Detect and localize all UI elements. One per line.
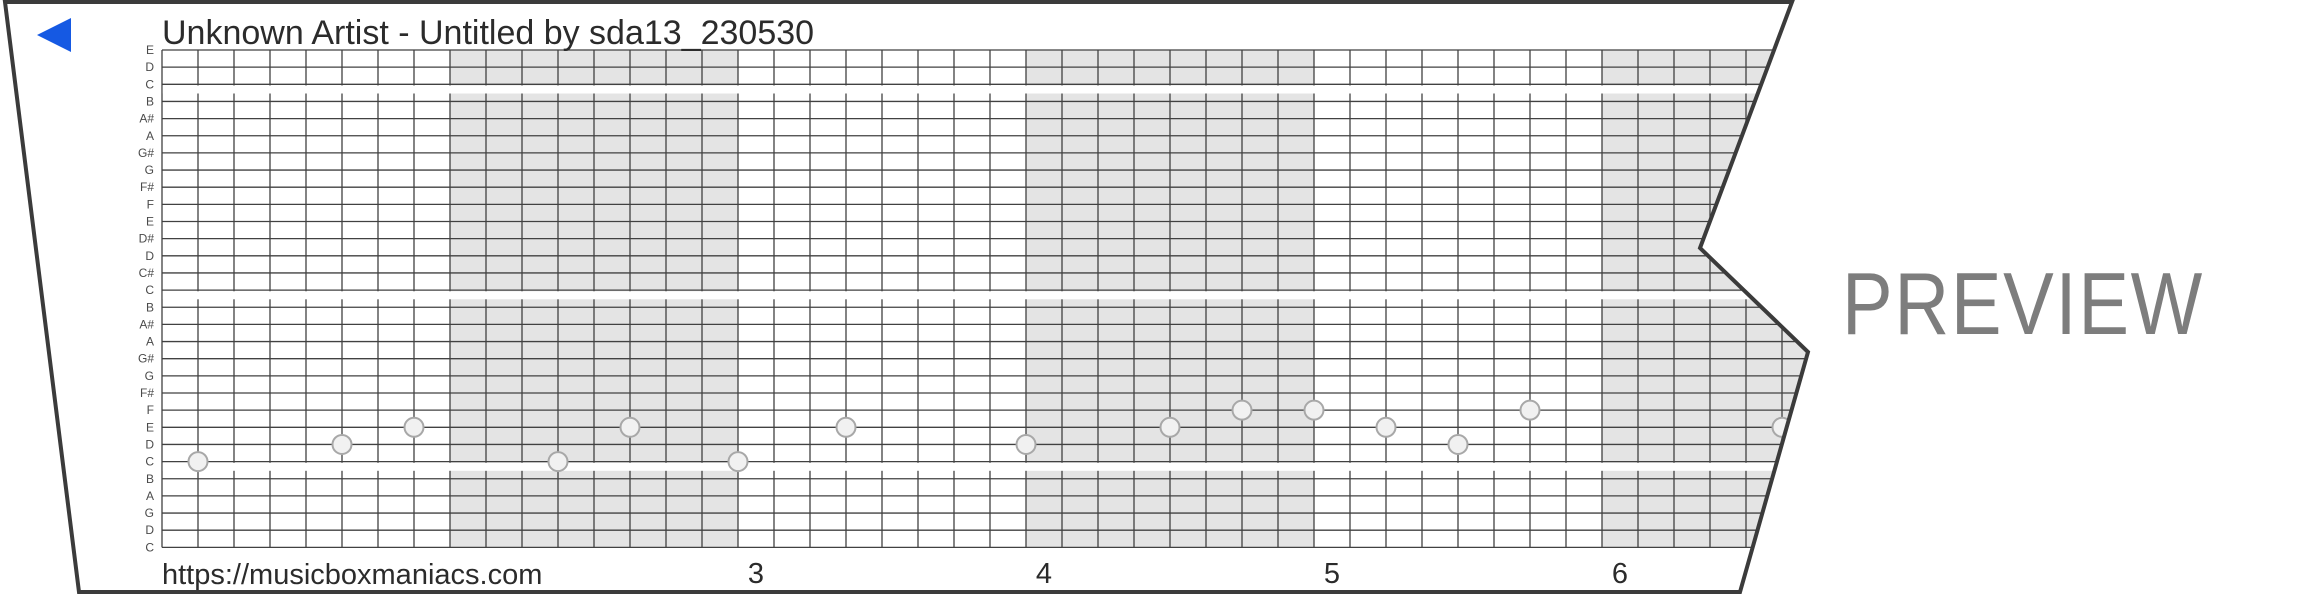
note-label: D bbox=[145, 60, 154, 74]
note-label: F bbox=[147, 403, 154, 417]
note-hole bbox=[1161, 418, 1180, 437]
note-label: G bbox=[145, 369, 154, 383]
note-label: A bbox=[146, 335, 154, 349]
note-hole bbox=[837, 418, 856, 437]
note-label: E bbox=[146, 420, 154, 434]
note-label: E bbox=[146, 43, 154, 57]
note-hole bbox=[1017, 435, 1036, 454]
note-label: A# bbox=[139, 317, 154, 331]
note-label: F bbox=[147, 197, 154, 211]
note-hole bbox=[405, 418, 424, 437]
measure-number: 4 bbox=[1036, 558, 1052, 590]
note-label: F# bbox=[140, 386, 154, 400]
note-label: D bbox=[145, 437, 154, 451]
note-hole bbox=[1377, 418, 1396, 437]
note-label: G# bbox=[138, 146, 154, 160]
note-label: B bbox=[146, 300, 154, 314]
octave-gap-band bbox=[163, 291, 1901, 299]
measure-number: 6 bbox=[1612, 558, 1628, 590]
strip-svg: Unknown Artist - Untitled by sda13_23053… bbox=[0, 0, 2310, 597]
note-label: F# bbox=[140, 180, 154, 194]
note-label: G bbox=[145, 163, 154, 177]
note-hole bbox=[1449, 435, 1468, 454]
measure-number: 3 bbox=[748, 558, 764, 590]
preview-watermark: PREVIEW bbox=[1842, 254, 2204, 353]
footer-url[interactable]: https://musicboxmaniacs.com bbox=[162, 559, 542, 591]
note-label: D bbox=[145, 523, 154, 537]
note-hole bbox=[1233, 401, 1252, 420]
note-hole bbox=[1521, 401, 1540, 420]
octave-gap-band bbox=[163, 463, 1901, 471]
octave-gap-band bbox=[163, 86, 1901, 94]
note-label: E bbox=[146, 215, 154, 229]
note-label: D bbox=[145, 249, 154, 263]
note-hole bbox=[729, 452, 748, 471]
note-label: G bbox=[145, 506, 154, 520]
note-hole bbox=[1305, 401, 1324, 420]
note-hole bbox=[621, 418, 640, 437]
note-label: C# bbox=[139, 266, 155, 280]
note-label: B bbox=[146, 94, 154, 108]
note-hole bbox=[333, 435, 352, 454]
strip-title: Unknown Artist - Untitled by sda13_23053… bbox=[162, 14, 814, 52]
note-label: C bbox=[145, 77, 154, 91]
musicbox-strip-preview: Unknown Artist - Untitled by sda13_23053… bbox=[0, 0, 2310, 597]
note-label: A bbox=[146, 489, 154, 503]
note-hole bbox=[189, 452, 208, 471]
note-label: B bbox=[146, 472, 154, 486]
note-hole bbox=[549, 452, 568, 471]
note-label: A bbox=[146, 129, 154, 143]
note-label: A# bbox=[139, 112, 154, 126]
note-label: G# bbox=[138, 352, 154, 366]
note-label: D# bbox=[139, 232, 155, 246]
measure-number: 5 bbox=[1324, 558, 1340, 590]
note-label: C bbox=[145, 540, 154, 554]
note-label: C bbox=[145, 283, 154, 297]
note-label: C bbox=[145, 455, 154, 469]
